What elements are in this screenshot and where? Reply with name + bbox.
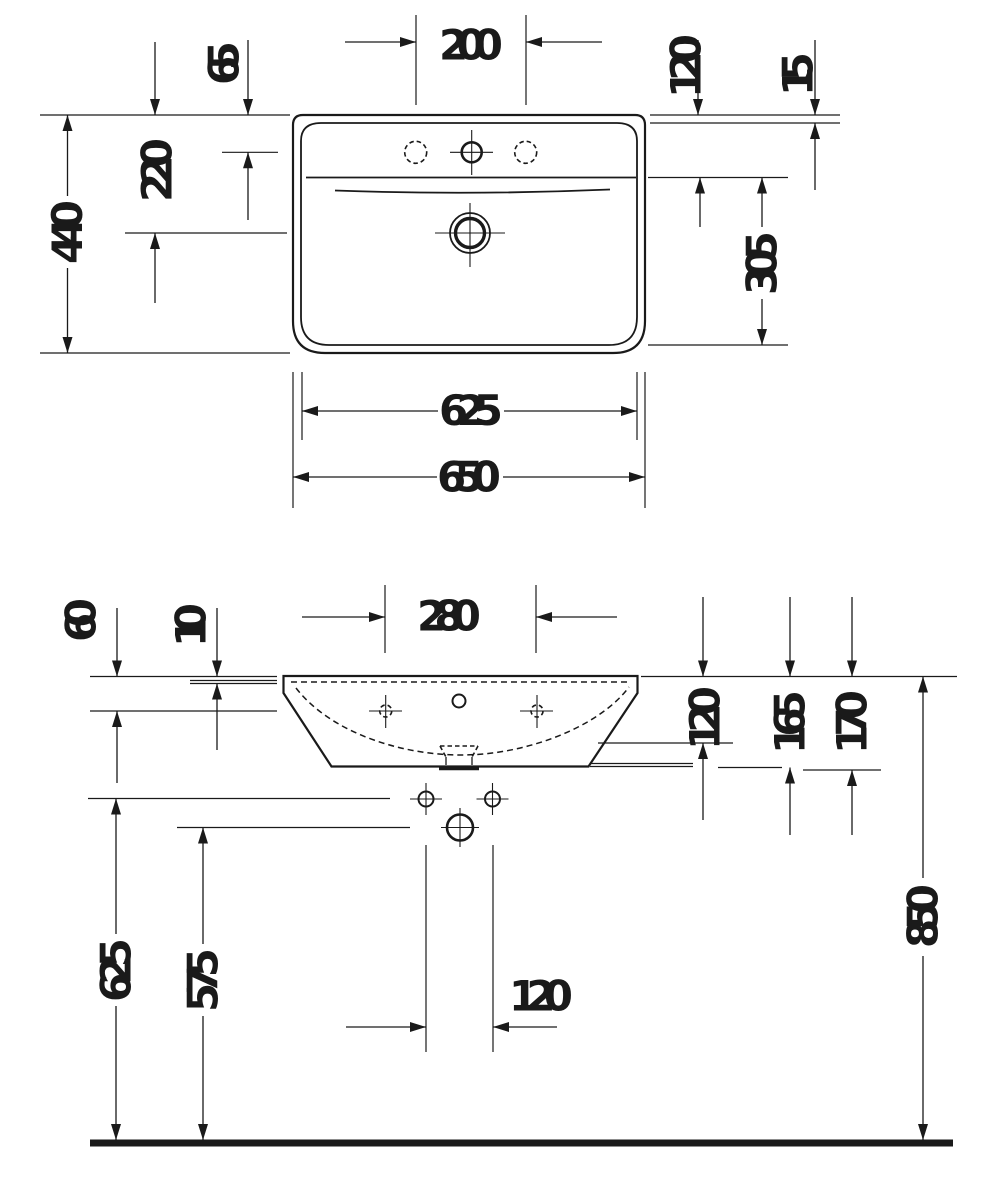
dim-mounting-height: 850 — [899, 677, 948, 1141]
dim-front-edge-height: 60 — [57, 598, 118, 783]
front-tap-hole — [453, 695, 466, 708]
dim-drain-height: 575 — [179, 828, 228, 1141]
dim-drain-offset: 220 — [133, 42, 182, 303]
front-bowl-hidden-curve — [296, 687, 629, 755]
dim-label-165: 165 — [766, 690, 815, 754]
dim-label-850: 850 — [899, 884, 948, 948]
dim-fixing-hole-spacing: 280 — [302, 592, 617, 641]
dim-label-120-front: 120 — [681, 686, 730, 750]
dim-inner-width: 625 — [302, 386, 637, 435]
dim-label-650: 650 — [437, 453, 501, 502]
plan-bowl-edge-curve — [335, 190, 610, 193]
washbasin-drawing: 200 65 220 440 120 1 — [0, 0, 984, 1200]
dim-label-170: 170 — [828, 690, 877, 754]
dim-overall-body-height: 170 — [828, 597, 877, 835]
dim-back-ledge-depth: 120 — [662, 34, 711, 227]
dim-label-575: 575 — [179, 948, 228, 1012]
dim-label-625-front: 625 — [92, 938, 141, 1002]
front-basin-outline — [284, 676, 638, 767]
dim-bolt-hole-spacing: 120 — [346, 972, 573, 1028]
dim-overall-width: 650 — [293, 453, 645, 502]
wall-bolt-hole-left — [410, 783, 442, 815]
dim-tap-hole-offset: 65 — [200, 40, 249, 220]
wall-bolt-hole-right — [477, 783, 509, 815]
dim-label-15: 15 — [774, 52, 823, 96]
tap-hole-right — [515, 141, 537, 163]
dim-label-120-plan: 120 — [662, 34, 711, 98]
dim-fixing-hole-height: 625 — [92, 799, 141, 1141]
plan-view: 200 65 220 440 120 1 — [40, 15, 840, 508]
front-fixing-hole-left — [369, 695, 402, 728]
dim-basin-inner-depth: 120 — [681, 597, 730, 820]
technical-drawing-page: 200 65 220 440 120 1 — [0, 0, 984, 1200]
front-view: 280 60 10 120 165 17 — [57, 585, 958, 1143]
dim-label-65: 65 — [200, 41, 249, 85]
dim-label-305: 305 — [738, 231, 787, 295]
plan-basin-outer-rim — [293, 115, 645, 353]
dim-label-220: 220 — [133, 138, 182, 202]
dim-label-120-bottom: 120 — [509, 972, 573, 1021]
front-drain-funnel — [439, 746, 479, 769]
plan-basin-inner-rim — [301, 123, 637, 345]
dim-label-440: 440 — [43, 200, 92, 264]
front-fixing-hole-right — [520, 695, 553, 728]
dim-label-60: 60 — [57, 598, 106, 642]
dim-label-280: 280 — [417, 592, 481, 641]
dim-label-625-plan: 625 — [439, 386, 503, 435]
wall-drain-hole — [441, 808, 479, 847]
dim-label-10: 10 — [167, 603, 216, 647]
dim-label-200: 200 — [439, 21, 503, 70]
tap-hole-left — [405, 141, 427, 163]
dim-bowl-depth: 305 — [738, 178, 787, 346]
dim-tap-hole-spacing: 200 — [345, 21, 602, 70]
dim-depth-to-flange: 165 — [766, 597, 815, 835]
dim-overall-depth: 440 — [43, 115, 92, 353]
